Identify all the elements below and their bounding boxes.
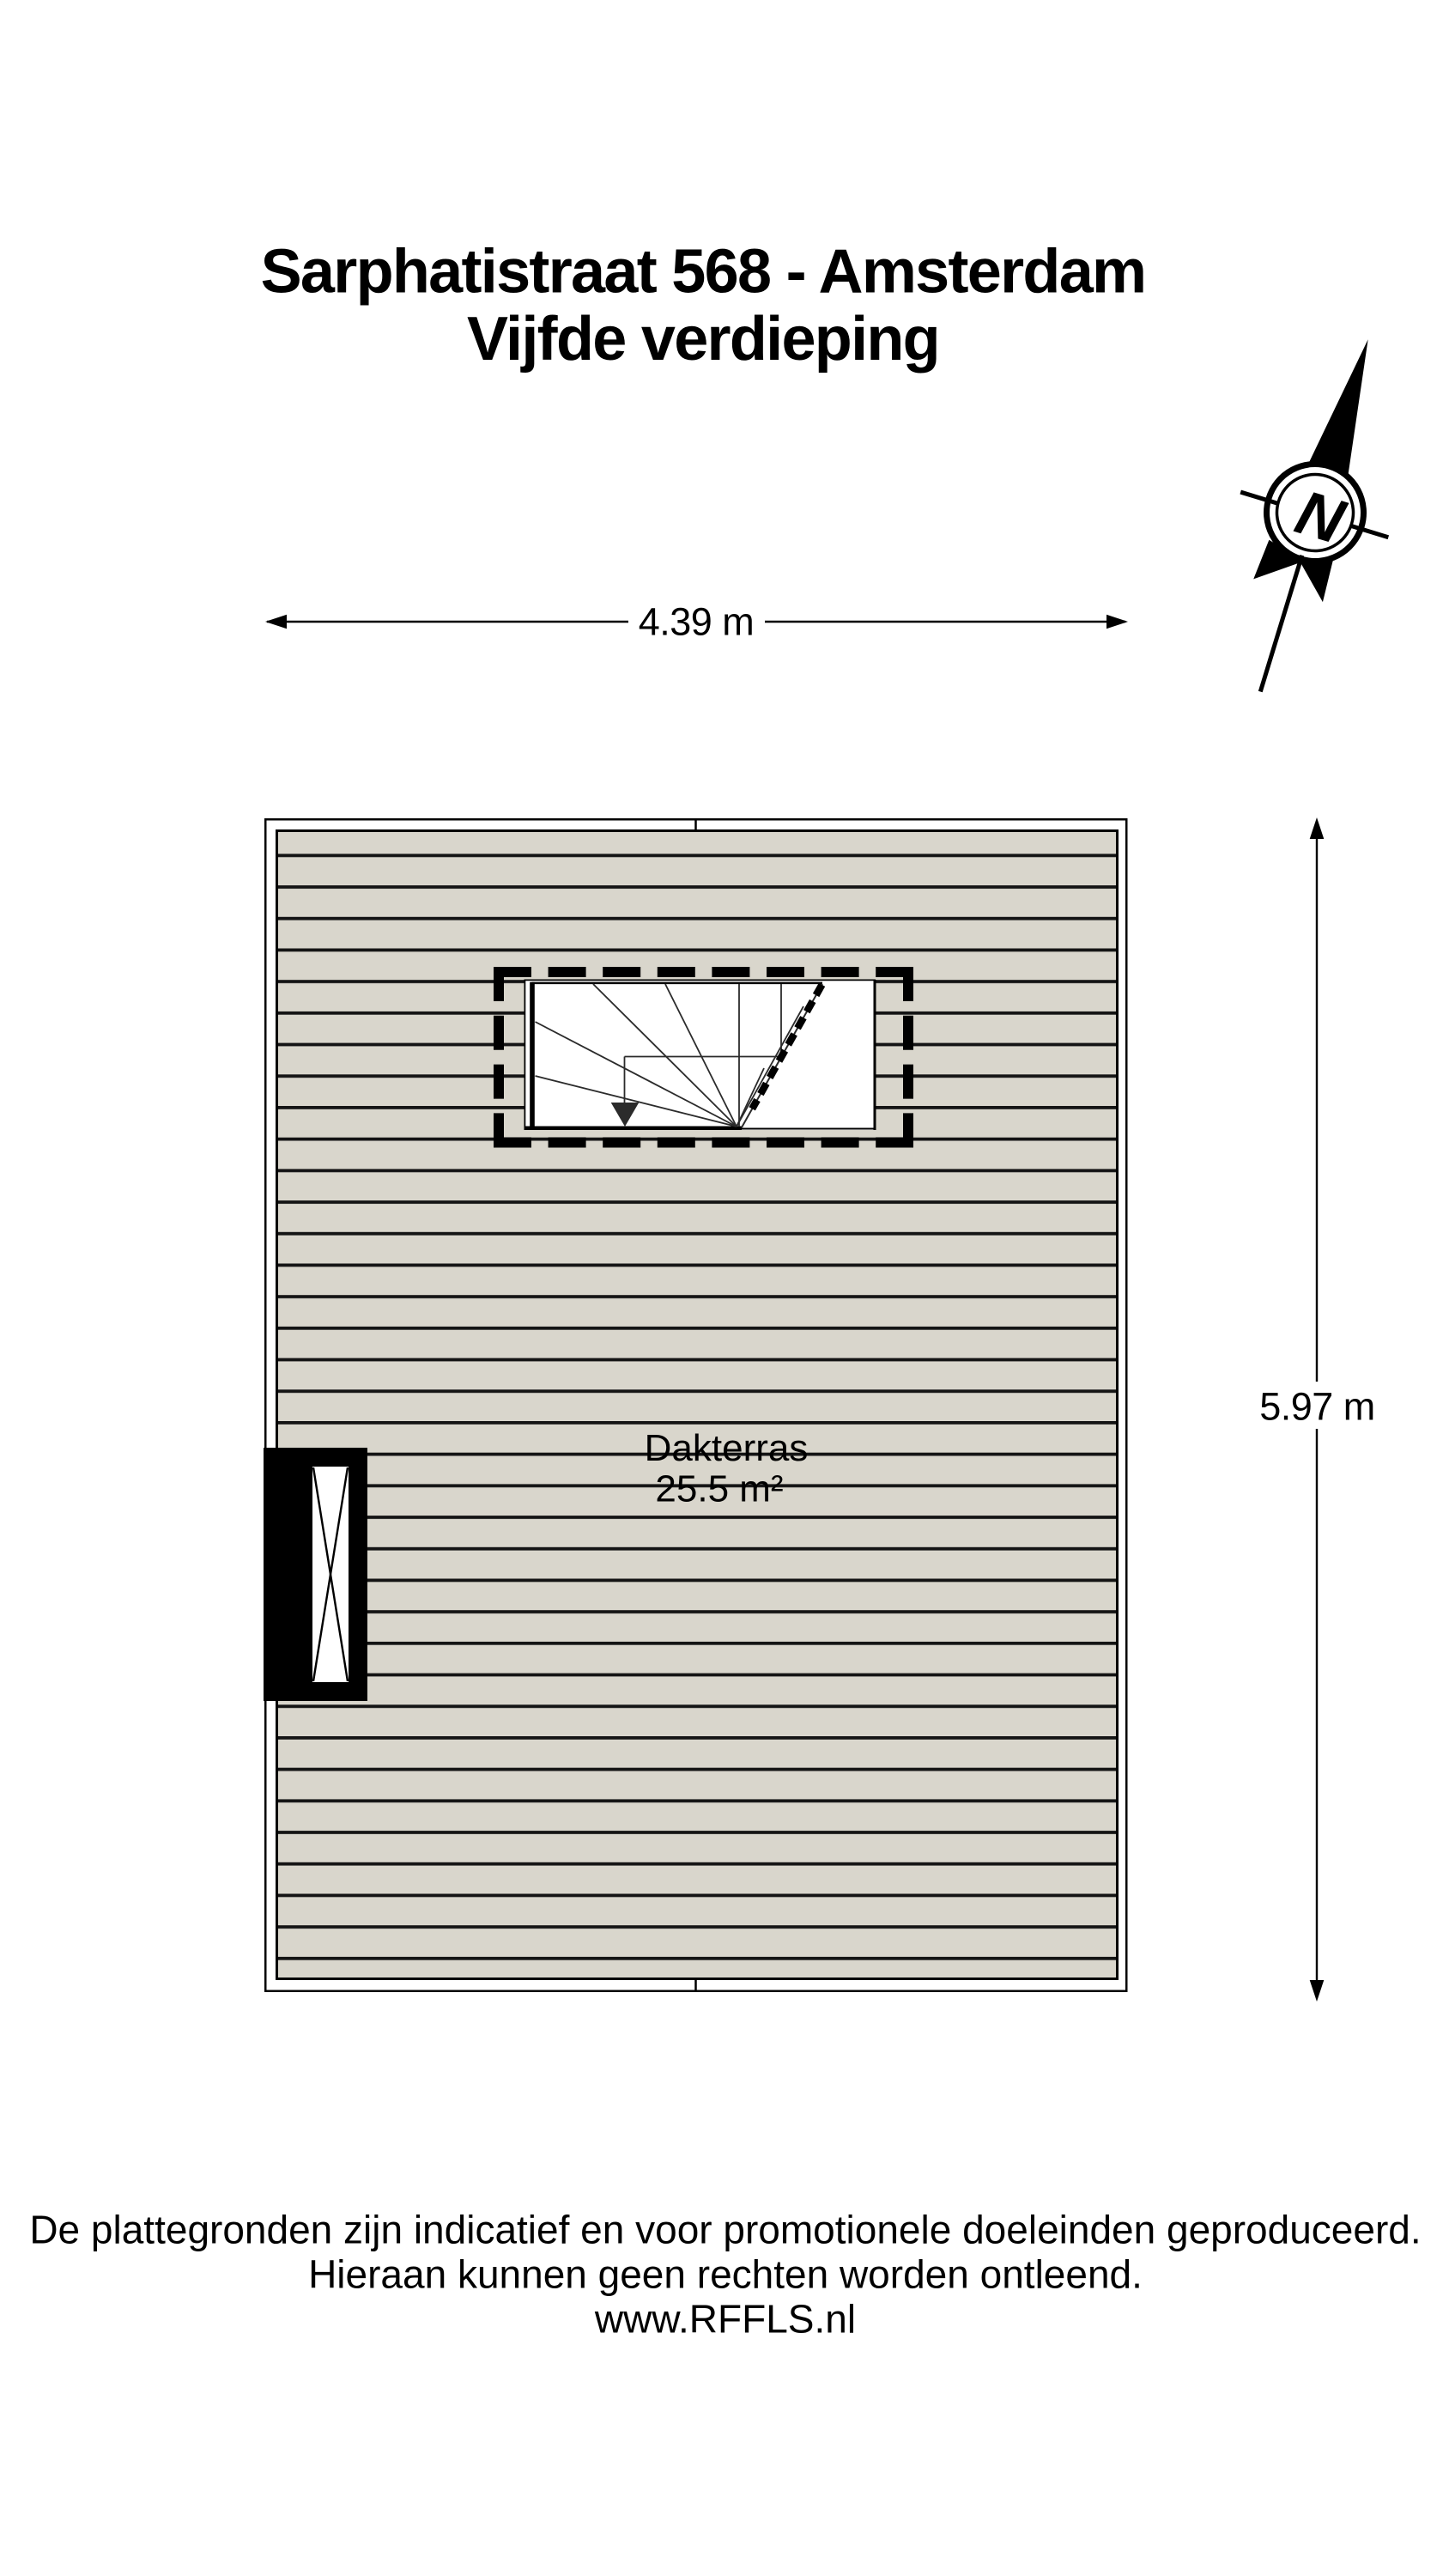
svg-text:Vijfde verdieping: Vijfde verdieping <box>467 305 939 374</box>
svg-text:Sarphatistraat 568 - Amsterdam: Sarphatistraat 568 - Amsterdam <box>261 238 1146 307</box>
svg-text:De plattegronden zijn indicati: De plattegronden zijn indicatief en voor… <box>29 2208 1421 2252</box>
svg-text:4.39 m: 4.39 m <box>639 600 755 644</box>
svg-text:Dakterras: Dakterras <box>645 1427 809 1469</box>
svg-text:Hieraan kunnen geen rechten wo: Hieraan kunnen geen rechten worden ontle… <box>308 2252 1143 2297</box>
svg-text:25.5 m²: 25.5 m² <box>655 1468 783 1510</box>
svg-text:www.RFFLS.nl: www.RFFLS.nl <box>594 2297 856 2342</box>
svg-text:5.97 m: 5.97 m <box>1259 1385 1375 1429</box>
